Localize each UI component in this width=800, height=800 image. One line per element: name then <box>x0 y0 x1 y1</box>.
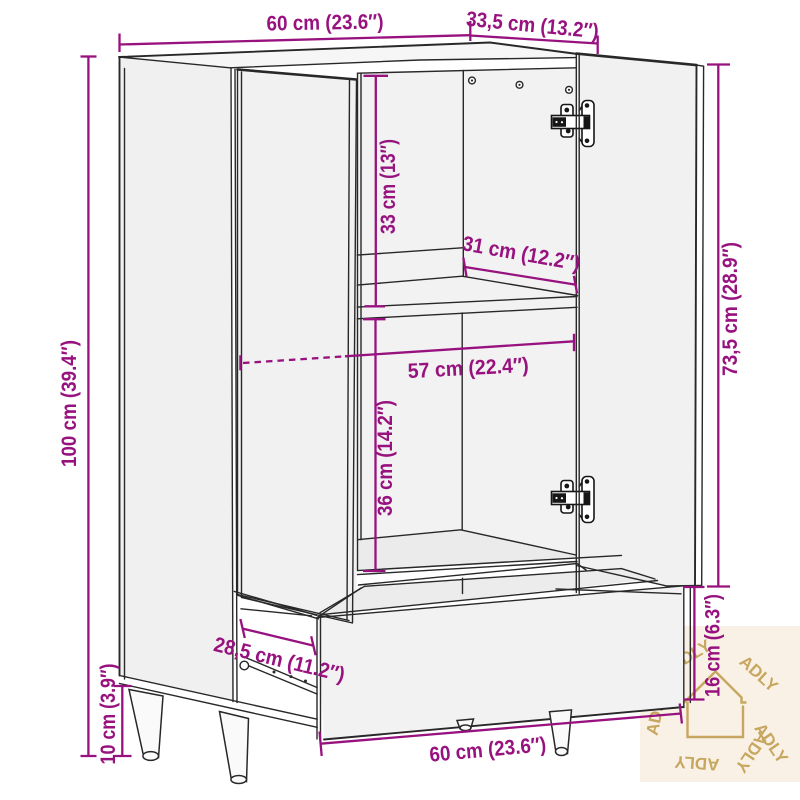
svg-text:33 cm (13″): 33 cm (13″) <box>377 139 400 234</box>
svg-text:36 cm (14.2″): 36 cm (14.2″) <box>374 400 397 516</box>
svg-text:60 cm (23.6″): 60 cm (23.6″) <box>266 10 383 35</box>
svg-text:ADLY: ADLY <box>673 752 720 774</box>
svg-text:10 cm (3.9″): 10 cm (3.9″) <box>97 664 120 765</box>
svg-text:16 cm (6.3″): 16 cm (6.3″) <box>702 594 725 697</box>
svg-text:100 cm (39.4″): 100 cm (39.4″) <box>58 340 81 467</box>
svg-text:73,5 cm (28.9″): 73,5 cm (28.9″) <box>719 242 742 376</box>
